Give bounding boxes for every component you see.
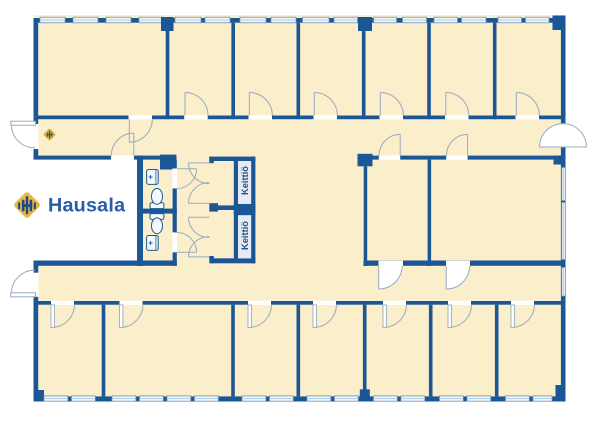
svg-text:Hausala: Hausala bbox=[48, 195, 126, 217]
svg-text:Keittiö: Keittiö bbox=[240, 221, 250, 250]
svg-text:Keittiö: Keittiö bbox=[240, 166, 250, 195]
